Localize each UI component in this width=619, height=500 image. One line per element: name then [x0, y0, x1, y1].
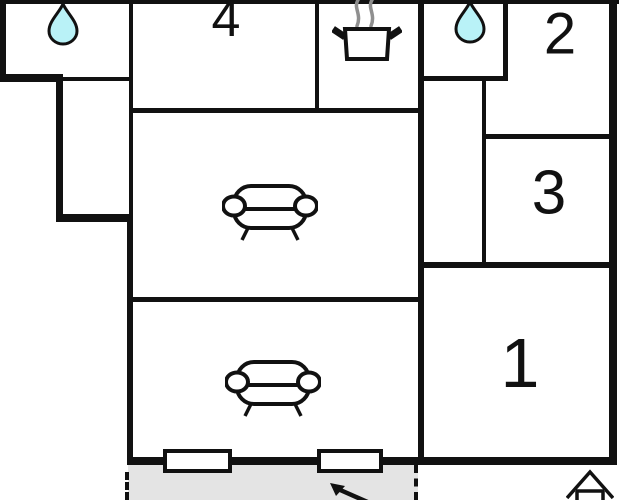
wall: [503, 0, 508, 79]
sofa-icon: [222, 182, 318, 242]
room-2-label: 2: [544, 6, 576, 64]
wall: [482, 134, 613, 139]
entrance-arrow-icon: [326, 480, 374, 500]
wall: [0, 0, 6, 81]
wall: [418, 76, 508, 81]
room-4-label: 4: [212, 0, 241, 45]
wall: [418, 262, 613, 268]
wall: [0, 0, 619, 4]
wall: [609, 0, 617, 465]
wall: [315, 0, 319, 111]
room-3-label: 3: [532, 163, 566, 225]
wall: [56, 214, 133, 222]
terrace-dashed-boundary-left: [125, 472, 129, 500]
window: [317, 449, 383, 473]
cooking-pot-icon: [332, 0, 402, 62]
wall: [0, 74, 63, 82]
wall: [418, 0, 424, 462]
wall: [56, 74, 63, 222]
wall: [482, 79, 486, 266]
terrace-dashed-boundary-right: [414, 465, 418, 500]
water-drop-icon: [45, 2, 81, 46]
wall: [127, 214, 133, 465]
sofa-icon: [225, 358, 321, 418]
window: [163, 449, 232, 473]
house-icon: [566, 469, 614, 500]
wall: [62, 77, 133, 81]
wall: [129, 108, 424, 113]
wall: [129, 297, 422, 302]
floor-plan: 1 2 3 4: [0, 0, 619, 500]
water-drop-icon: [452, 0, 488, 44]
room-1-label: 1: [501, 328, 540, 398]
